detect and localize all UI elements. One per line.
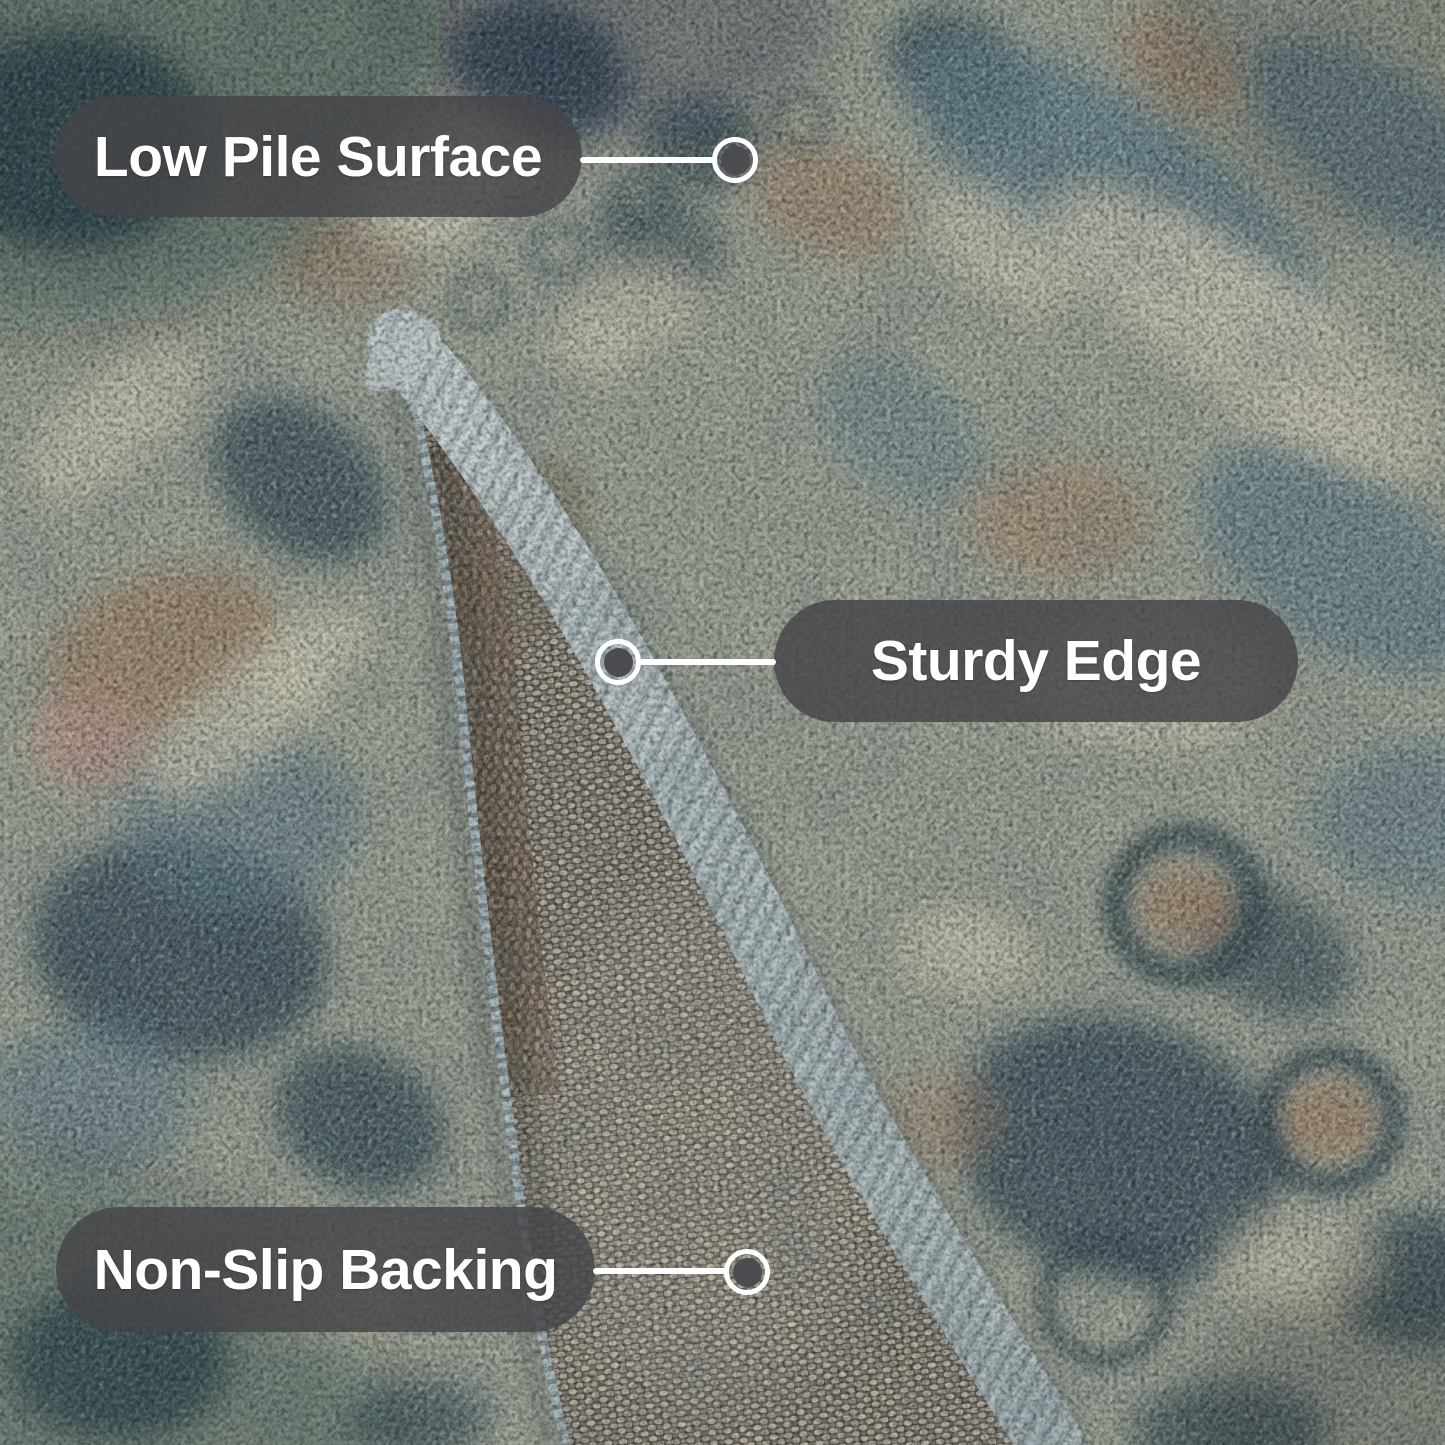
callout-marker-dot	[721, 146, 750, 175]
callout-marker-dot	[604, 648, 633, 677]
callout-marker-dot	[733, 1258, 762, 1287]
callout-pill-sturdy-edge: Sturdy Edge	[774, 600, 1298, 722]
callout-pill-non-slip-backing: Non-Slip Backing	[56, 1207, 595, 1332]
callout-marker-sturdy-edge	[595, 639, 641, 685]
callout-line-sturdy-edge	[639, 659, 776, 665]
callout-pill-low-pile-surface: Low Pile Surface	[54, 96, 582, 217]
callout-label-sturdy-edge: Sturdy Edge	[871, 628, 1201, 694]
callout-marker-low-pile-surface	[712, 137, 758, 183]
callout-label-non-slip-backing: Non-Slip Backing	[94, 1237, 558, 1303]
callout-marker-non-slip-backing	[724, 1249, 770, 1295]
callout-label-low-pile-surface: Low Pile Surface	[94, 124, 542, 190]
product-feature-image: Low Pile Surface Sturdy Edge Non-Slip Ba…	[0, 0, 1445, 1445]
callout-line-non-slip-backing	[593, 1268, 726, 1274]
callout-line-low-pile-surface	[580, 157, 714, 163]
